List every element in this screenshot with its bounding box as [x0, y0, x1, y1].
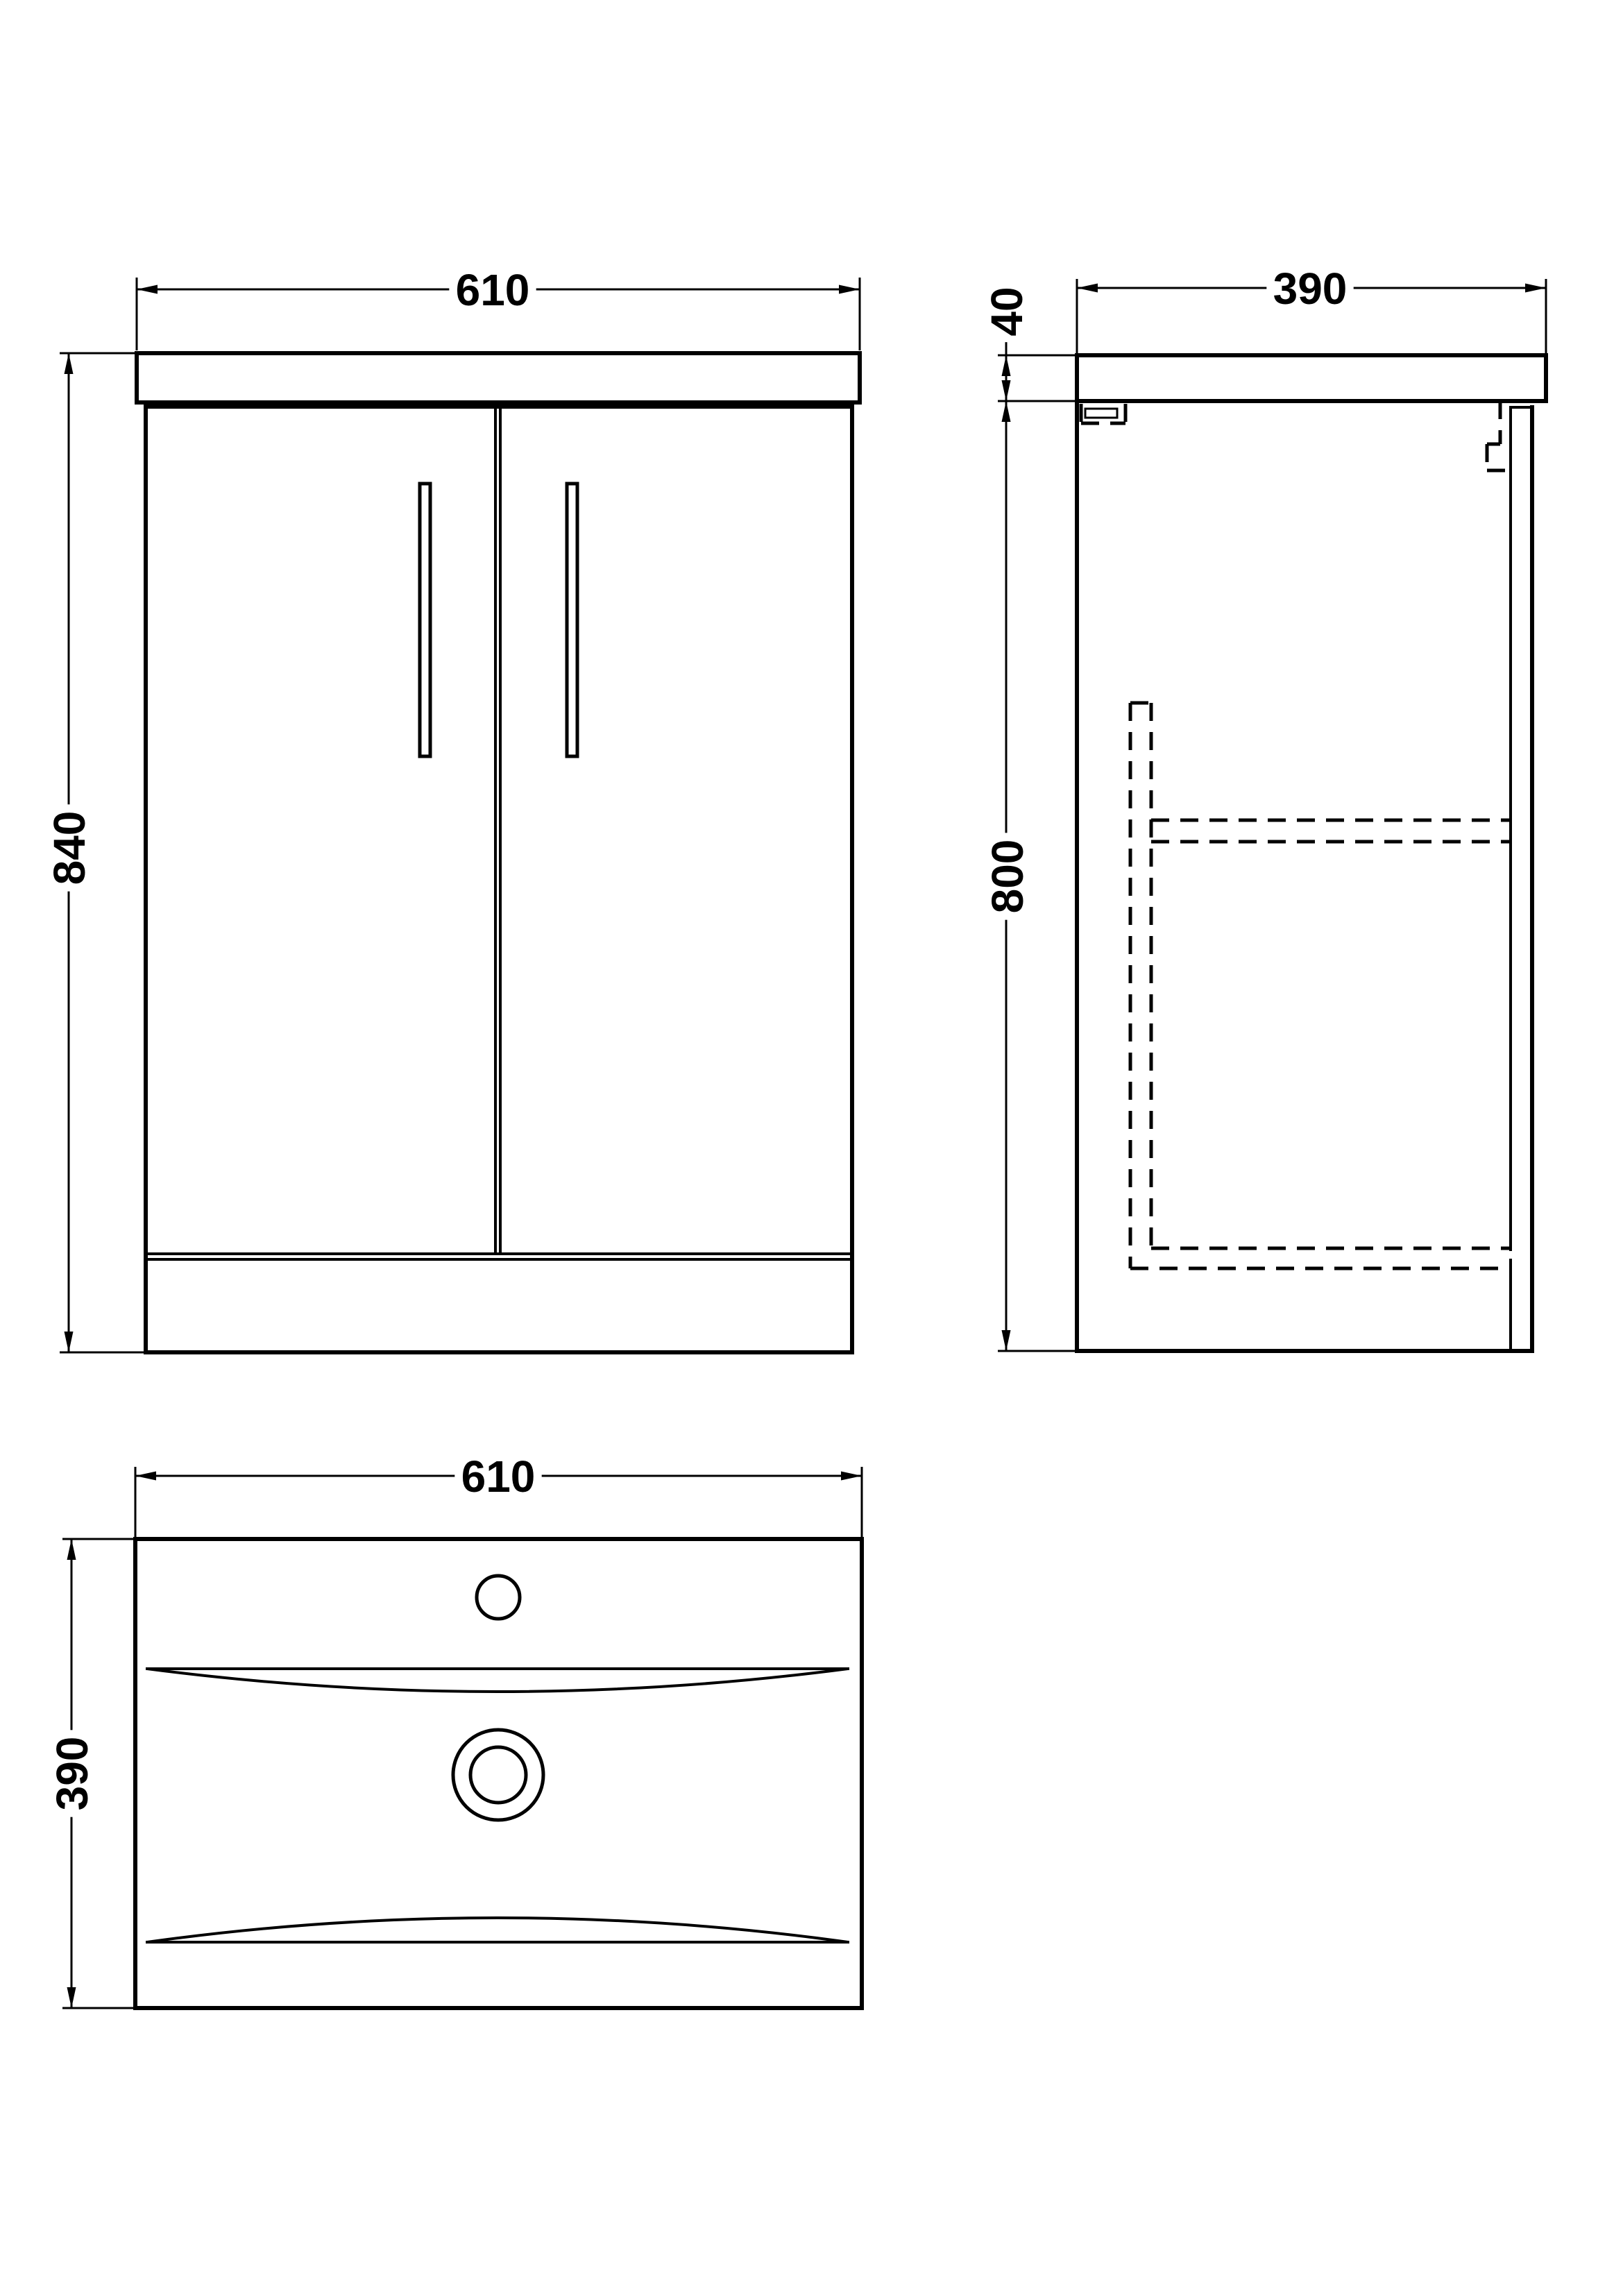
- side-worktop-outline: [1077, 355, 1546, 401]
- basin-front-bowl-curve: [147, 1918, 848, 1942]
- cabinet-height-dimension-arrowhead-1: [1002, 1330, 1011, 1351]
- worktop-thickness-dimension-arrowhead-0: [1002, 355, 1011, 376]
- cabinet-height-dimension-arrowhead-0: [1002, 401, 1011, 422]
- side-depth-dimension-arrowhead-1: [1525, 284, 1546, 293]
- worktop-thickness-dimension-label: 40: [982, 287, 1032, 336]
- tap-hole: [477, 1576, 520, 1619]
- side-elevation-view: [1077, 355, 1546, 1351]
- plan-width-dimension-label: 610: [461, 1452, 536, 1502]
- front-height-dimension-label-group: 840: [44, 804, 94, 891]
- side-depth-dimension-label-group: 390: [1266, 264, 1353, 314]
- worktop-thickness-dimension-arrowhead-1: [1002, 380, 1011, 401]
- plan-depth-dimension-label-group: 390: [47, 1730, 97, 1817]
- left-door-handle: [420, 484, 430, 756]
- plan-basin-outline: [135, 1539, 862, 2008]
- front-height-dimension-arrowhead-1: [65, 1332, 74, 1352]
- cabinet-height-dimension-label-group: 800: [983, 833, 1033, 919]
- side-depth-dimension-label: 390: [1273, 264, 1348, 314]
- worktop-thickness-dimension-label-group: 40: [982, 281, 1032, 342]
- vanity-unit-technical-drawing: 61084039040800610390: [0, 0, 1623, 2296]
- front-worktop-outline: [137, 353, 860, 402]
- front-width-dimension-label-group: 610: [449, 265, 536, 315]
- waste-outlet-inner-ring: [470, 1747, 526, 1803]
- front-width-dimension-label: 610: [456, 265, 530, 315]
- side-depth-dimension-arrowhead-0: [1077, 284, 1098, 293]
- basin-back-bowl-curve: [147, 1669, 848, 1692]
- side-depth-dimension: 390: [1077, 264, 1546, 355]
- drawing-canvas: 61084039040800610390: [0, 0, 1623, 2296]
- plan-view: [135, 1539, 862, 2008]
- plan-depth-dimension-arrowhead-1: [67, 1987, 76, 2008]
- front-height-dimension-label: 840: [44, 811, 94, 885]
- worktop-thickness-dimension: 40: [982, 281, 1075, 401]
- front-width-dimension-arrowhead-0: [137, 285, 158, 294]
- front-height-dimension-arrowhead-0: [65, 353, 74, 374]
- plan-width-dimension-arrowhead-1: [841, 1472, 862, 1481]
- right-door-handle: [567, 484, 577, 756]
- front-width-dimension: 610: [137, 265, 860, 350]
- hinge-plate: [1085, 409, 1117, 418]
- front-elevation-view: [137, 353, 860, 1352]
- plan-width-dimension-label-group: 610: [454, 1452, 541, 1502]
- cabinet-height-dimension: 800: [983, 401, 1075, 1351]
- plan-depth-dimension: 390: [47, 1539, 133, 2008]
- plan-depth-dimension-arrowhead-0: [67, 1539, 76, 1560]
- front-width-dimension-arrowhead-1: [839, 285, 860, 294]
- plan-width-dimension-arrowhead-0: [135, 1472, 156, 1481]
- plan-depth-dimension-label: 390: [47, 1737, 97, 1811]
- waste-outlet-outer-ring: [453, 1730, 543, 1820]
- plan-width-dimension: 610: [135, 1452, 862, 1537]
- cabinet-height-dimension-label: 800: [983, 840, 1033, 914]
- front-height-dimension: 840: [44, 353, 144, 1352]
